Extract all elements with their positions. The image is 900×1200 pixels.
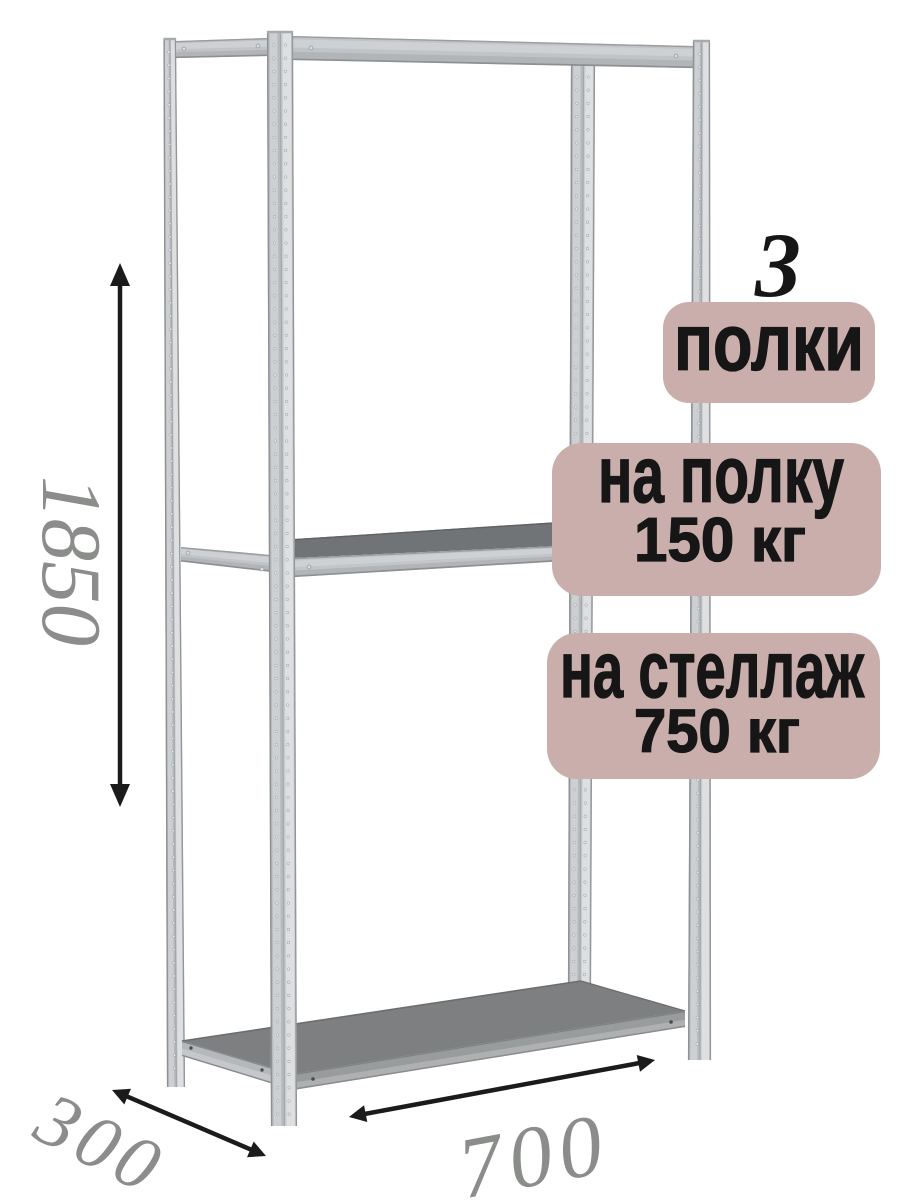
svg-text:полки: полки [674,298,864,387]
svg-text:1850: 1850 [24,476,118,646]
svg-text:750 кг: 750 кг [634,697,800,765]
svg-text:150 кг: 150 кг [634,506,806,575]
